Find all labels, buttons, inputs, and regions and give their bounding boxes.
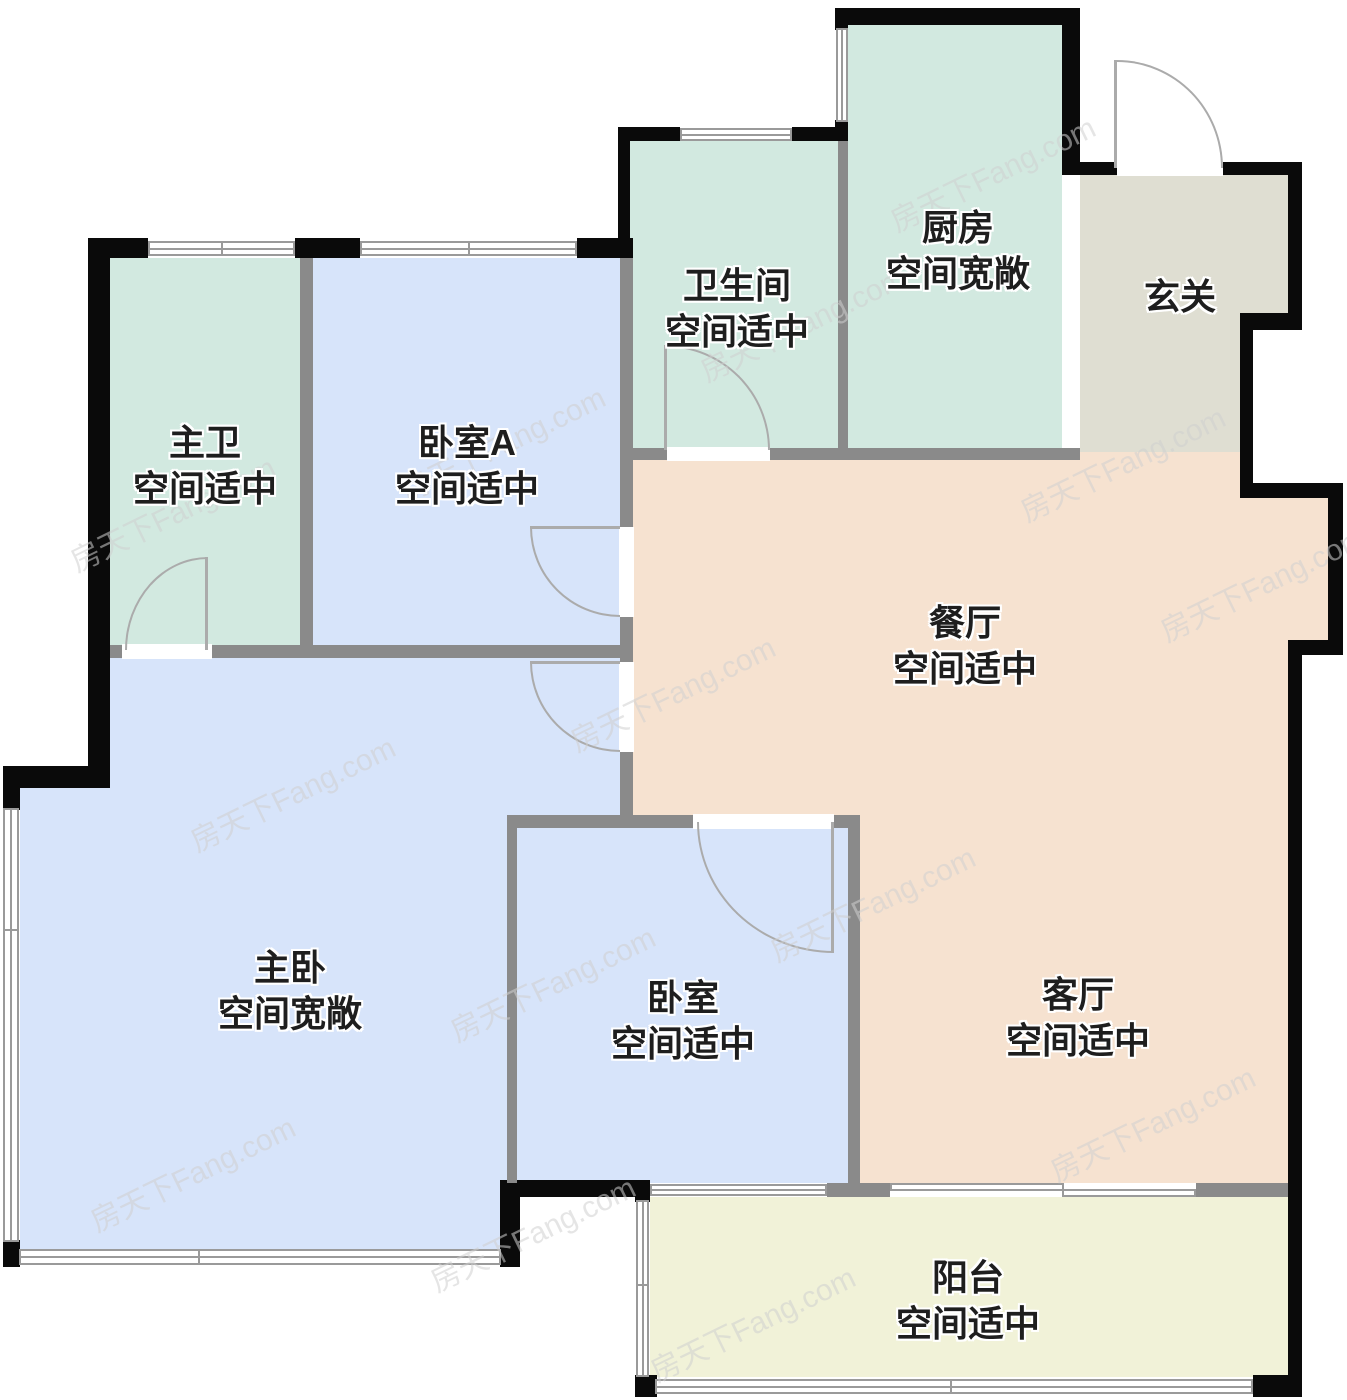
- room-label-bathroom: 卫生间 空间适中: [665, 263, 809, 355]
- door-leaf: [664, 345, 667, 450]
- wall-segment: [1288, 162, 1302, 330]
- window-symbol: [836, 28, 848, 122]
- room-status: 空间适中: [133, 466, 277, 512]
- room-name: 卧室A: [395, 420, 539, 466]
- room-status: 空间适中: [665, 309, 809, 355]
- wall-segment: [620, 617, 633, 662]
- room-status: 空间宽敞: [218, 991, 362, 1037]
- room-label-balcony: 阳台 空间适中: [896, 1255, 1040, 1347]
- door-leaf: [530, 661, 620, 664]
- room-status: 空间适中: [395, 466, 539, 512]
- wall-segment: [835, 8, 1080, 25]
- wall-segment: [1240, 330, 1253, 498]
- wall-segment: [300, 258, 313, 645]
- room-status: 空间适中: [611, 1021, 755, 1067]
- room-label-bedroom-a: 卧室A 空间适中: [395, 420, 539, 512]
- room-label-dining: 餐厅 空间适中: [893, 600, 1037, 692]
- wall-segment: [295, 238, 360, 258]
- wall-segment: [3, 766, 110, 788]
- room-name: 主卧: [218, 945, 362, 991]
- sliding-door-symbol: [1062, 1189, 1196, 1197]
- room-label-kitchen: 厨房 空间宽敞: [886, 205, 1030, 297]
- room-name: 厨房: [886, 205, 1030, 251]
- room-name: 玄关: [1144, 274, 1216, 320]
- wall-segment: [1062, 8, 1080, 175]
- window-symbol: [3, 808, 19, 1242]
- window-symbol: [655, 1379, 1253, 1394]
- room-name: 餐厅: [893, 600, 1037, 646]
- room-name: 客厅: [1006, 972, 1150, 1018]
- door-leaf: [831, 822, 834, 953]
- wall-segment: [1288, 655, 1302, 1397]
- wall-segment: [835, 8, 848, 30]
- room-status: 空间适中: [1006, 1018, 1150, 1064]
- wall-segment: [848, 828, 860, 1197]
- window-tick: [950, 1379, 952, 1394]
- wall-segment: [1196, 1183, 1288, 1197]
- door-leaf: [530, 526, 620, 529]
- wall-segment: [88, 238, 110, 785]
- wall-segment: [834, 815, 860, 828]
- window-symbol: [650, 1184, 827, 1196]
- wall-segment: [635, 1180, 650, 1202]
- wall-segment: [620, 258, 633, 527]
- window-symbol: [636, 1200, 649, 1377]
- room-label-master-bath: 主卫 空间适中: [133, 420, 277, 512]
- window-tick: [3, 929, 19, 931]
- window-tick: [468, 241, 470, 256]
- window-tick: [636, 1284, 649, 1286]
- window-tick: [198, 1249, 200, 1265]
- wall-segment: [1328, 498, 1343, 655]
- room-name: 主卫: [133, 420, 277, 466]
- room-name: 卧室: [611, 975, 755, 1021]
- door-leaf: [1114, 60, 1117, 168]
- room-status: 空间适中: [893, 646, 1037, 692]
- room-label-bedroom: 卧室 空间适中: [611, 975, 755, 1067]
- door-opening: [619, 662, 634, 752]
- door-arc: [1117, 60, 1223, 168]
- wall-segment: [1240, 483, 1343, 498]
- wall-segment: [3, 1240, 20, 1267]
- room-label-foyer: 玄关: [1144, 274, 1216, 320]
- window-symbol: [19, 1249, 501, 1265]
- wall-segment: [212, 645, 633, 658]
- wall-segment: [1223, 162, 1302, 175]
- room-name: 阳台: [896, 1255, 1040, 1301]
- wall-segment: [792, 127, 848, 141]
- wall-segment: [838, 141, 848, 448]
- room-name: 卫生间: [665, 263, 809, 309]
- wall-segment: [635, 1375, 657, 1397]
- wall-segment: [618, 127, 630, 258]
- window-symbol: [680, 128, 792, 141]
- wall-segment: [110, 645, 122, 658]
- sliding-door-symbol: [890, 1183, 1064, 1191]
- door-opening: [619, 527, 634, 617]
- wall-segment: [3, 788, 20, 810]
- window-tick: [221, 241, 223, 256]
- room-status: 空间宽敞: [886, 251, 1030, 297]
- wall-segment: [507, 815, 693, 828]
- room-foyer-area: [1080, 313, 1240, 452]
- wall-segment: [770, 448, 1080, 460]
- room-label-master-bedroom: 主卧 空间宽敞: [218, 945, 362, 1037]
- room-status: 空间适中: [896, 1301, 1040, 1347]
- wall-segment: [827, 1183, 890, 1197]
- door-leaf: [205, 557, 208, 650]
- floor-plan: 房天下Fang.com 房天下Fang.com 房天下Fang.com 房天下F…: [0, 0, 1347, 1400]
- wall-segment: [500, 1180, 650, 1197]
- wall-segment: [630, 448, 667, 460]
- room-label-living: 客厅 空间适中: [1006, 972, 1150, 1064]
- wall-segment: [507, 815, 517, 1183]
